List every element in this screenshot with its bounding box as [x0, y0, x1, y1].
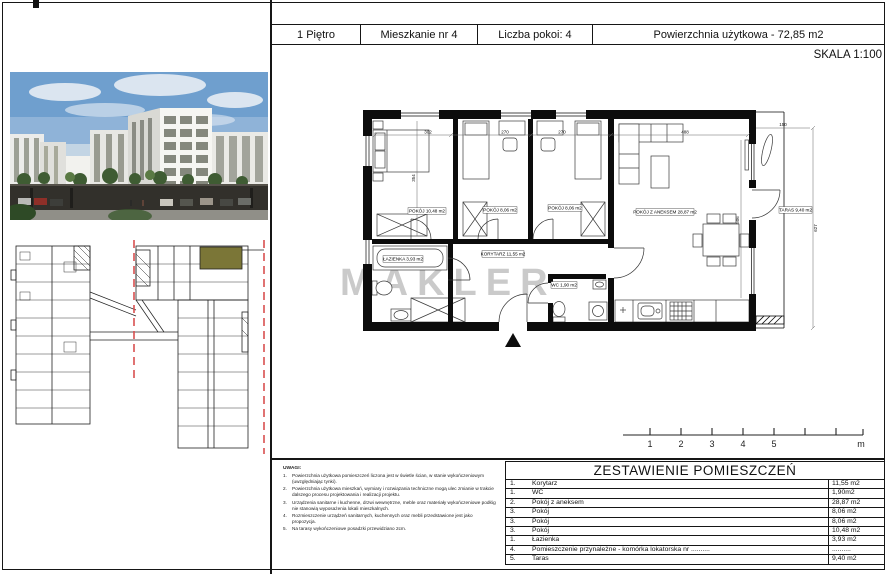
dim-text: 354: [411, 174, 416, 182]
scale-note: SKALA 1:100: [814, 49, 882, 61]
notes-block: UWAGI: 1. Powierzchnia użytkowa pomieszc…: [283, 466, 497, 534]
scale-tick-label: 3: [709, 439, 714, 449]
header-table: 1 Piętro Mieszkanie nr 4 Liczba pokoi: 4…: [272, 24, 884, 45]
chair: [707, 214, 720, 223]
room-label: KORYTARZ 11,55 m2: [481, 252, 526, 257]
note-item: 1. Powierzchnia użytkowa pomieszczeń lic…: [283, 473, 497, 485]
dim-text: 627: [813, 224, 818, 232]
plan-sheet: 1 Piętro Mieszkanie nr 4 Liczba pokoi: 4…: [0, 0, 890, 574]
terrace-plant: [759, 134, 775, 167]
corner-mark: [33, 0, 39, 8]
chair: [723, 257, 736, 266]
table-row: 4. Pomieszczenie przynależne - komórka l…: [505, 546, 885, 555]
room-label: WC 1,90 m2: [551, 283, 577, 288]
chair: [541, 138, 555, 151]
highlighted-unit: [200, 247, 242, 269]
furniture: [372, 121, 775, 322]
scale-unit-label: m: [857, 439, 865, 449]
entrance-arrow: [505, 333, 521, 347]
note-item: 5. Na tarasy wykończeniowe posadzki prze…: [283, 526, 497, 532]
scale-bar: 1 2 3 4 5 m: [615, 422, 885, 450]
apartment-floor-plan: 302 270 270 488 354 506 150 627 POKÓJ 10…: [353, 88, 833, 353]
left-building-wing: [11, 246, 90, 424]
dim-text: 270: [501, 130, 509, 135]
room-label: ŁAZIENKA 3,93 m2: [383, 257, 423, 262]
site-key-plan: [8, 232, 270, 462]
dim-text: 150: [779, 122, 787, 127]
coffee-table: [651, 156, 669, 188]
header-rooms-count: Liczba pokoi: 4: [477, 25, 592, 44]
header-apartment: Mieszkanie nr 4: [360, 25, 477, 44]
table-row: 3. Pokój 8,06 m2: [505, 518, 885, 527]
right-building-wing: [136, 246, 248, 448]
tv: [745, 140, 749, 170]
parking-deck: [10, 184, 268, 210]
scale-tick-label: 2: [678, 439, 683, 449]
dim-text: 302: [424, 130, 432, 135]
section-lines: [134, 240, 264, 454]
room-label: POKÓJ 8,06 m2: [483, 207, 517, 213]
nightstand: [373, 121, 383, 129]
scale-tick-label: 1: [647, 439, 652, 449]
chair: [707, 257, 720, 266]
dining-table: [703, 224, 739, 256]
summary-title: ZESTAWIENIE POMIESZCZEŃ: [505, 461, 885, 480]
header-floor: 1 Piętro: [272, 25, 360, 44]
note-item: 3. Urządzenia sanitarne i kuchenne, drzw…: [283, 500, 497, 512]
dim-text: 488: [681, 130, 689, 135]
table-row: 1. Korytarz 11,55 m2: [505, 480, 885, 489]
note-item: 2. Powierzchnia użytkowa mieszkań, wymia…: [283, 486, 497, 498]
room-label: POKÓJ Z ANEKSEM 28,87 m2: [633, 209, 697, 215]
column-divider: [270, 0, 272, 574]
chair: [503, 138, 517, 151]
note-item: 4. Rozmieszczenie urządzeń sanitarnych, …: [283, 513, 497, 525]
table-row: 2. Pokój z aneksem 28,87 m2: [505, 499, 885, 508]
room-summary-table: ZESTAWIENIE POMIESZCZEŃ 1. Korytarz 11,5…: [505, 461, 885, 565]
scale-tick-label: 4: [740, 439, 745, 449]
footer-divider: [270, 458, 885, 460]
header-usable-area: Powierzchnia użytkowa - 72,85 m2: [592, 25, 884, 44]
room-label: TARAS 9,40 m2: [779, 208, 812, 213]
toilet: [376, 281, 392, 295]
table-row: 3. Pokój 10,48 m2: [505, 527, 885, 536]
building-photo: [10, 72, 268, 220]
table-row: 5. Taras 9,40 m2: [505, 555, 885, 564]
table-row: 1. WC 1,90m2: [505, 489, 885, 498]
notes-title: UWAGI:: [283, 466, 497, 472]
chair: [740, 234, 749, 247]
scale-tick-label: 5: [771, 439, 776, 449]
scale-bar-labels: 1 2 3 4 5 m: [647, 439, 864, 449]
toilet: [553, 302, 565, 317]
table-row: 1. Łazienka 3,93 m2: [505, 536, 885, 545]
chair: [693, 234, 702, 247]
table-row: 3. Pokój 8,06 m2: [505, 508, 885, 517]
dim-text: 506: [735, 216, 740, 224]
nightstand: [373, 173, 383, 181]
room-label: POKÓJ 10,48 m2: [409, 208, 445, 214]
toilet-tank: [553, 317, 565, 322]
room-label: POKÓJ 8,06 m2: [548, 205, 582, 211]
dim-text: 270: [558, 130, 566, 135]
